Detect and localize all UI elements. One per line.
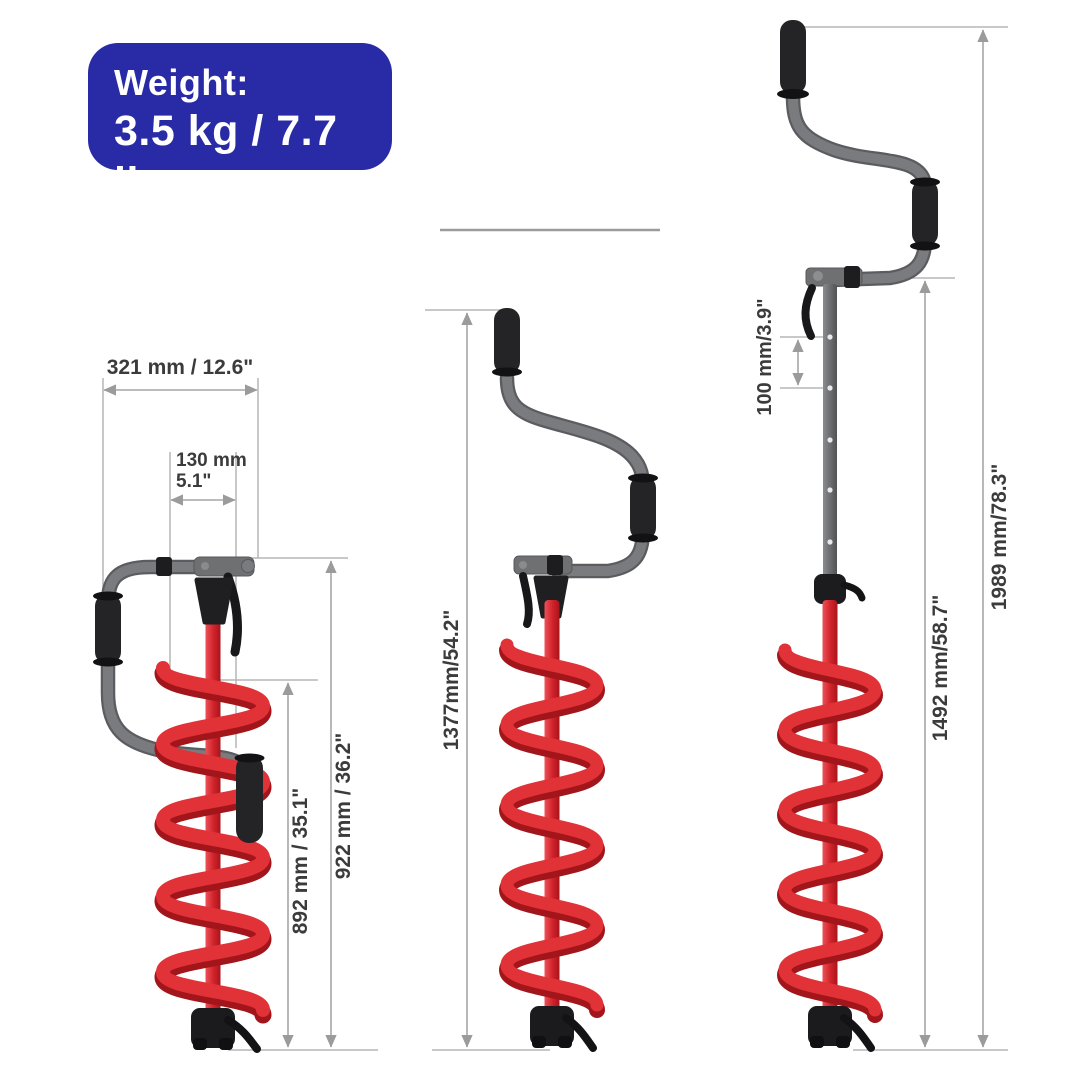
auger-mid-figure bbox=[492, 308, 658, 1048]
crank-grip-lower bbox=[236, 755, 263, 843]
label-hole-spacing: 100 mm/3.9" bbox=[754, 247, 778, 467]
label-crank-width: 321 mm / 12.6" bbox=[88, 356, 272, 380]
lock-lever bbox=[523, 576, 529, 624]
crank-grip-lower bbox=[912, 180, 938, 246]
auger-collapsed-figure bbox=[93, 557, 265, 1050]
crank-arm bbox=[793, 96, 925, 280]
cutting-head bbox=[191, 1008, 257, 1050]
label-auger-height-collapsed: 892 mm / 35.1" bbox=[289, 751, 313, 971]
adjustment-hole bbox=[827, 539, 832, 544]
extension-shaft bbox=[823, 284, 837, 604]
crank-grip-upper bbox=[494, 308, 520, 374]
weight-badge-value: 3.5 kg / 7.7 lb bbox=[114, 105, 366, 209]
auger-extended-figure bbox=[777, 20, 940, 1048]
label-overall-height-mid: 1377mm/54.2" bbox=[440, 570, 464, 790]
adjustment-hole bbox=[827, 487, 832, 492]
crank-grip-upper bbox=[95, 594, 121, 664]
adjustment-hole bbox=[827, 334, 832, 339]
label-shaft-height-extended: 1492 mm/58.7" bbox=[929, 558, 953, 778]
label-overall-height-extended: 1989 mm/78.3" bbox=[988, 427, 1012, 647]
label-blade-width-in: 5.1" bbox=[176, 471, 211, 493]
label-blade-width-mm: 130 mm bbox=[176, 450, 247, 472]
shaft-coupler bbox=[197, 580, 231, 622]
adjustment-hole bbox=[827, 437, 832, 442]
crank-grip-lower bbox=[630, 476, 656, 540]
label-overall-height-collapsed: 922 mm / 36.2" bbox=[332, 696, 356, 916]
crank-grip-upper bbox=[780, 20, 806, 94]
cutting-head bbox=[530, 1006, 593, 1048]
lock-lever bbox=[805, 288, 812, 336]
cutting-head bbox=[808, 1006, 871, 1048]
weight-badge: Weight: 3.5 kg / 7.7 lb bbox=[88, 43, 392, 170]
crank-arm bbox=[507, 378, 643, 571]
product-dimension-diagram: Weight: 3.5 kg / 7.7 lb 321 mm / 12.6" 1… bbox=[0, 0, 1080, 1080]
shaft-clamp bbox=[814, 574, 862, 604]
weight-badge-title: Weight: bbox=[114, 61, 366, 105]
adjustment-hole bbox=[827, 385, 832, 390]
